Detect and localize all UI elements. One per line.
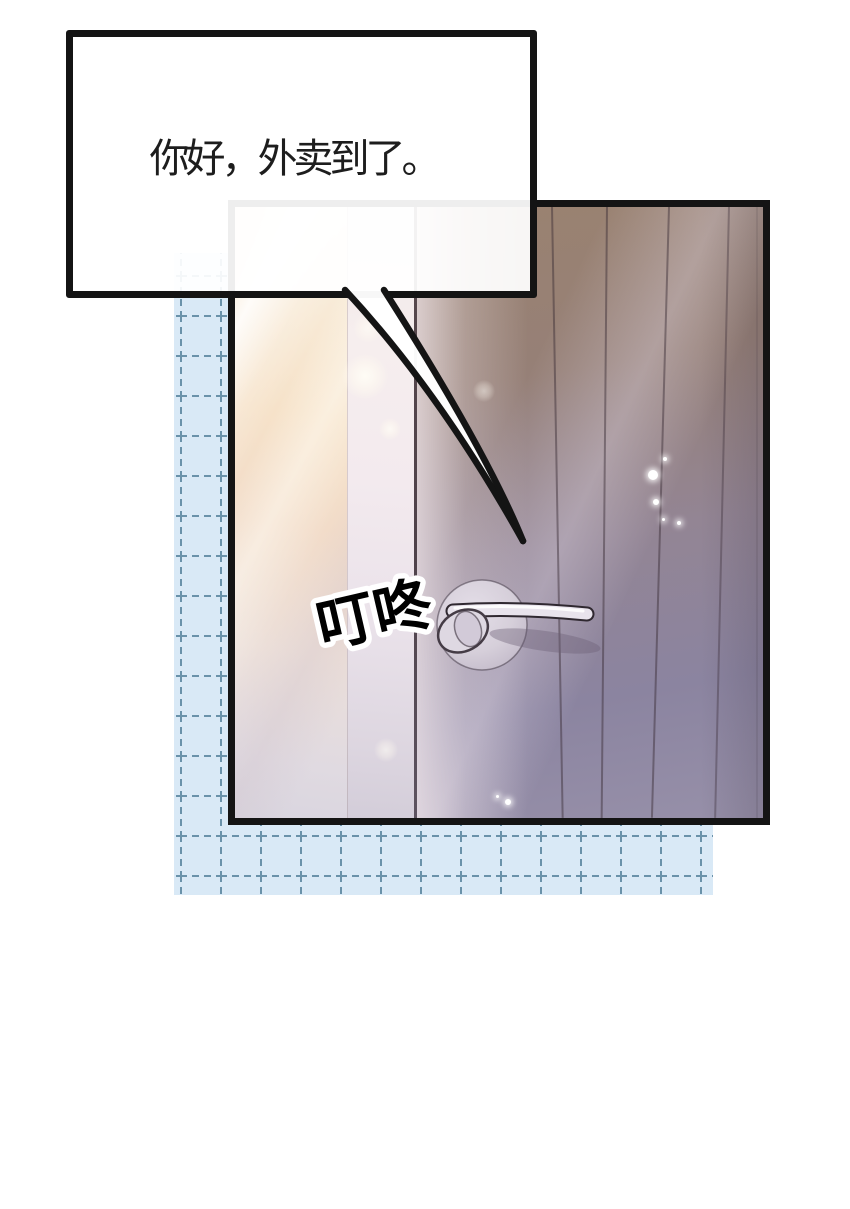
door-frame-strip	[347, 207, 415, 818]
light-glow	[379, 418, 401, 440]
speech-bubble: 你好，外卖到了。	[66, 30, 537, 298]
light-glow	[342, 353, 388, 399]
sparkle	[663, 457, 667, 461]
light-glow	[353, 313, 383, 343]
door-face	[417, 207, 763, 818]
wall-light	[235, 207, 347, 818]
sparkle	[662, 518, 665, 521]
sparkle	[648, 470, 658, 480]
light-glow	[473, 380, 495, 402]
light-glow	[374, 738, 398, 762]
door-panel-line	[756, 207, 758, 818]
comic-page: 叮咚 你好，外卖到了。	[0, 0, 850, 1209]
speech-bubble-text: 你好，外卖到了。	[150, 126, 454, 202]
sparkle	[505, 799, 511, 805]
sfx-ding-dong-text: 叮咚	[311, 571, 440, 661]
sparkle	[677, 521, 681, 525]
sparkle	[653, 499, 659, 505]
sparkle	[496, 795, 499, 798]
door-scene: 叮咚	[235, 207, 763, 818]
